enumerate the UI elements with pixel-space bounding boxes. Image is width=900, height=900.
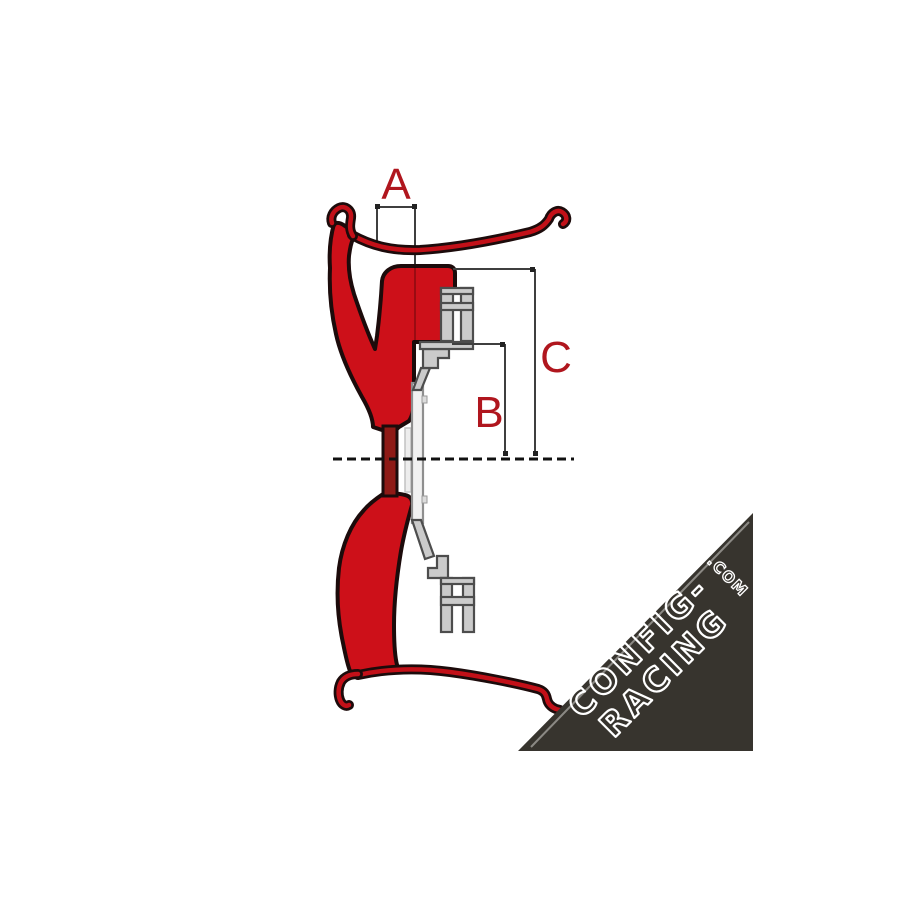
hub-plate-notch-upper xyxy=(422,396,427,403)
hub-lower-bracket xyxy=(441,578,474,632)
hub-upper-bracket xyxy=(441,288,473,341)
hub-lower-diagonal xyxy=(412,520,434,559)
hub-mounting-plate xyxy=(412,383,423,523)
hub-plate-notch-lower xyxy=(422,496,427,503)
wheel-offset-diagram: A B C CONFIG- RACING .COM xyxy=(0,0,900,900)
rim-waist-neck xyxy=(383,426,397,496)
dim-label-c: C xyxy=(540,333,572,382)
dim-label-b: B xyxy=(474,388,503,437)
hub-upper-step-block xyxy=(423,349,449,368)
rim-cross-section-svg: A B C CONFIG- RACING .COM xyxy=(0,0,900,900)
dim-label-a: A xyxy=(381,160,411,209)
rim-upper-section xyxy=(330,223,455,430)
hub-lower-step-block xyxy=(428,556,448,578)
rim-lower-section xyxy=(338,493,413,676)
dimension-a xyxy=(377,207,415,266)
watermark: CONFIG- RACING .COM xyxy=(518,513,753,751)
